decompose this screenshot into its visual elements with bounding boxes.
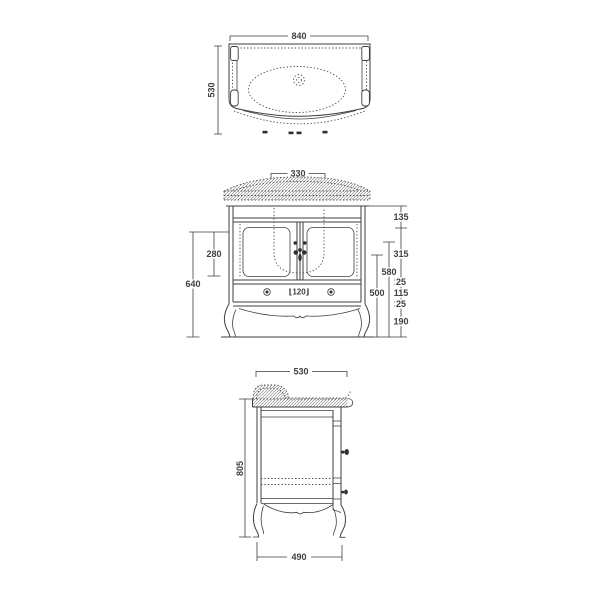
foot-mark bbox=[289, 132, 294, 135]
carcass-height-label: 640 bbox=[185, 279, 200, 289]
knob-stem bbox=[341, 451, 345, 454]
corner-post-front-right bbox=[362, 90, 370, 106]
drain-center-icon bbox=[297, 78, 302, 83]
hinge-dot-left bbox=[294, 241, 297, 244]
segment-190-label: 190 bbox=[393, 317, 408, 327]
leg-front-outer bbox=[340, 505, 345, 537]
side-drawer-knob-icon bbox=[341, 490, 348, 495]
counter-outline bbox=[229, 44, 370, 116]
ornament-right bbox=[302, 250, 307, 255]
side-depth-label: 530 bbox=[293, 367, 308, 377]
vanity-technical-drawing: 840 530 bbox=[0, 0, 600, 600]
side-base bbox=[253, 504, 346, 538]
plan-width-label: 840 bbox=[291, 31, 306, 41]
leg-right-inner bbox=[358, 310, 361, 338]
front-base bbox=[221, 304, 374, 337]
side-dim-base: 490 bbox=[257, 542, 342, 562]
bottom-rail bbox=[233, 302, 361, 306]
front-drawer: ⌊120⌋ bbox=[264, 288, 335, 297]
segment-115-label: 115 bbox=[394, 288, 409, 298]
corner-post-front-left bbox=[231, 90, 239, 106]
door-handle-ornament-icon bbox=[294, 248, 307, 262]
apron-curve bbox=[264, 504, 333, 514]
knob-stem bbox=[341, 491, 344, 493]
front-door-slab bbox=[333, 407, 341, 505]
top-rail bbox=[261, 411, 333, 418]
door-panel-left bbox=[243, 228, 290, 277]
hinge-dot-right bbox=[303, 241, 306, 244]
corner-post-back-left bbox=[231, 47, 239, 61]
front-edge-curve bbox=[243, 111, 356, 120]
hump-hatch bbox=[224, 177, 370, 191]
leg-left-outer bbox=[224, 304, 229, 337]
mid-height-label: 580 bbox=[381, 267, 396, 277]
plan-view: 840 530 bbox=[207, 31, 371, 134]
slab-hatch bbox=[253, 399, 348, 408]
front-doors bbox=[240, 208, 357, 280]
apron-curve bbox=[239, 309, 360, 318]
mid-rail bbox=[233, 280, 361, 284]
nose-top-dotted bbox=[346, 391, 351, 398]
front-dim-right: 500 580 135 315 25 115 25 190 bbox=[367, 206, 410, 337]
side-base-label: 490 bbox=[291, 552, 306, 562]
leg-right-outer bbox=[364, 304, 369, 337]
slab-joint-ticks bbox=[333, 421, 341, 499]
side-height-label: 805 bbox=[235, 461, 245, 476]
foot-mark bbox=[323, 131, 328, 134]
leg-left-inner bbox=[233, 310, 236, 338]
side-carcass bbox=[257, 407, 349, 505]
side-view: 530 bbox=[235, 367, 353, 563]
plan-dim-depth: 530 bbox=[207, 46, 223, 134]
back-edges bbox=[257, 407, 261, 503]
shelf-dotted bbox=[261, 479, 333, 485]
plan-dim-width: 840 bbox=[230, 31, 368, 41]
slab-hatch bbox=[224, 191, 370, 200]
corner-post-back-right bbox=[362, 47, 370, 61]
front-dim-left: 280 640 bbox=[183, 232, 229, 337]
side-dim-depth: 530 bbox=[256, 367, 347, 378]
drawer-inner-label: ⌊120⌋ bbox=[289, 288, 310, 297]
segment-25b-label: 25 bbox=[396, 299, 406, 309]
counter-inner-dotted bbox=[233, 48, 367, 98]
side-countertop bbox=[253, 385, 353, 407]
segment-315-label: 315 bbox=[393, 249, 408, 259]
segment-135-label: 135 bbox=[393, 212, 408, 222]
ornament-left bbox=[294, 250, 299, 255]
front-view: 330 bbox=[183, 168, 410, 337]
front-countertop bbox=[224, 177, 370, 206]
door-panel-right bbox=[307, 228, 354, 277]
leg-back-inner bbox=[261, 506, 264, 534]
door-height-label: 280 bbox=[206, 249, 221, 259]
counter-nose bbox=[348, 399, 353, 408]
basin-outline bbox=[249, 67, 346, 113]
top-rail bbox=[233, 218, 361, 222]
side-door-knob-icon bbox=[341, 449, 349, 455]
foot-mark bbox=[297, 132, 302, 135]
ornament-drop bbox=[298, 253, 301, 262]
technical-drawing-canvas: 840 530 bbox=[0, 0, 600, 600]
foot-mark bbox=[263, 131, 268, 134]
ornament-top bbox=[298, 248, 302, 252]
drawer-knob-right-center bbox=[330, 291, 333, 294]
leg-back-outer bbox=[253, 504, 258, 538]
plan-countertop bbox=[229, 44, 370, 134]
segment-25a-label: 25 bbox=[396, 277, 406, 287]
knob-cap bbox=[344, 490, 348, 495]
leg-front-inner bbox=[333, 509, 336, 536]
drawer-knob-left-center bbox=[266, 291, 269, 294]
side-dim-height: 805 bbox=[235, 399, 252, 537]
plan-depth-label: 530 bbox=[207, 82, 217, 97]
bottom-rail bbox=[261, 499, 333, 504]
inner-height-label: 500 bbox=[369, 288, 384, 298]
drain-icon bbox=[294, 75, 305, 86]
knob-cap bbox=[345, 449, 349, 455]
